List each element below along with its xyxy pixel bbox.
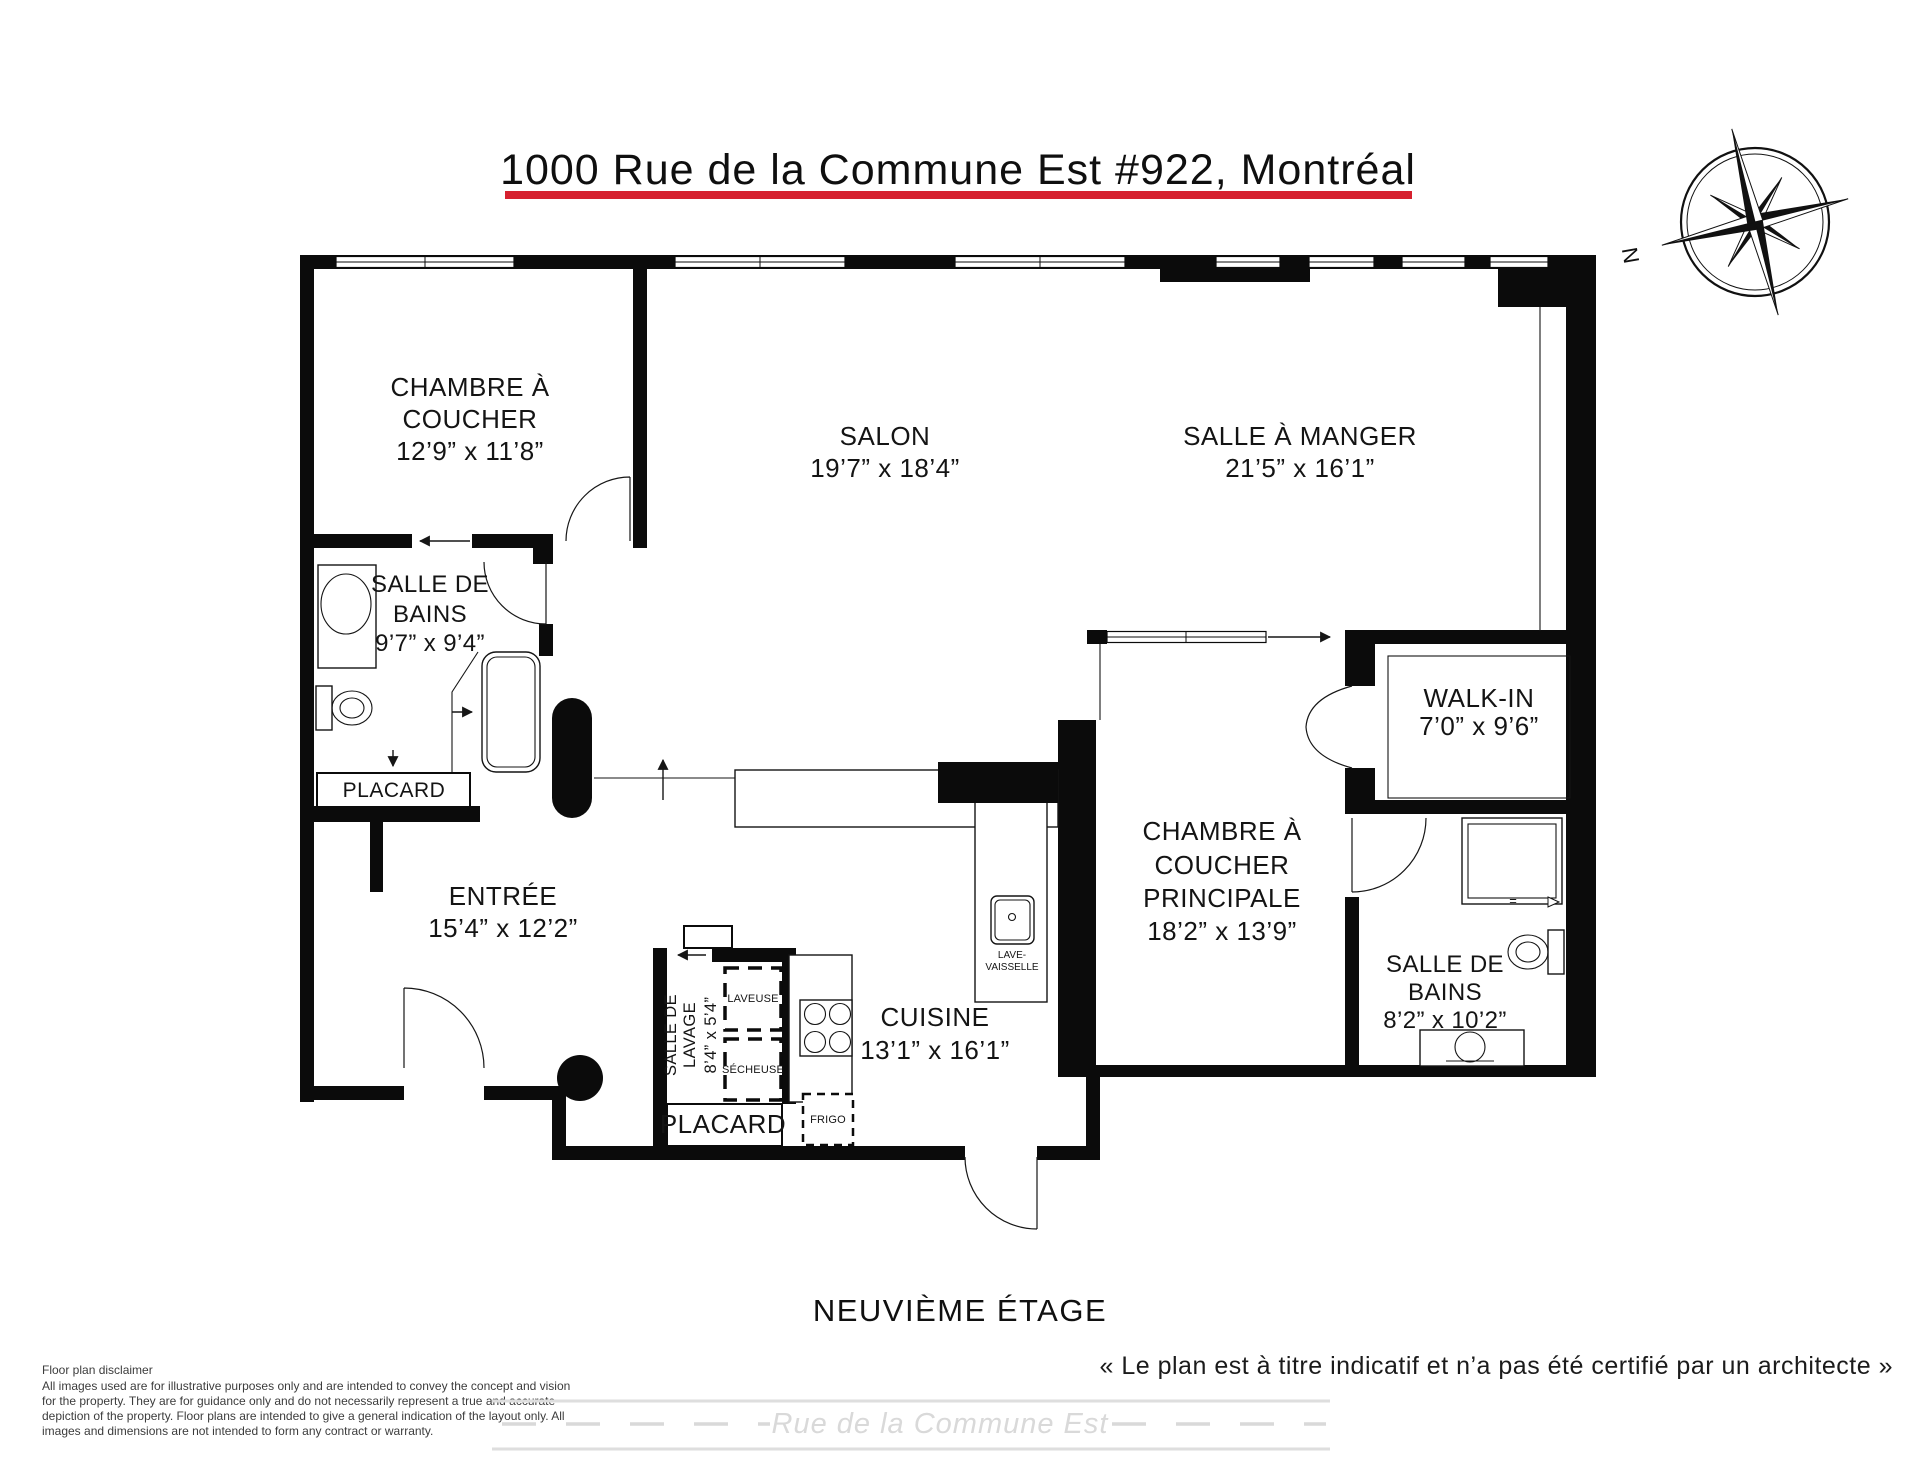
master-dims: 18’2” x 13’9” (1147, 916, 1297, 946)
washer-label: LAVEUSE (727, 993, 778, 1005)
bath2-label-2: BAINS (1408, 979, 1482, 1006)
laundry-label-1: SALLE DE (662, 994, 680, 1076)
closet2-label: PLACARD (660, 1109, 786, 1139)
salon-dims: 19’7” x 18’4” (810, 453, 960, 483)
stove-icon (800, 1000, 852, 1056)
interior-lines (594, 307, 1540, 778)
laundry-room: SALLE DE LAVAGE 8’4” x 5’4” LAVEUSE SÉCH… (662, 968, 784, 1100)
bedroom1-dims: 12’9” x 11’8” (396, 436, 544, 466)
entry-dims: 15’4” x 12’2” (428, 913, 578, 943)
header: 1000 Rue de la Commune Est #922, Montréa… (500, 146, 1416, 199)
bath1-label-2: BAINS (393, 601, 467, 628)
kitchen-label: CUISINE (881, 1002, 990, 1032)
title-underline (505, 191, 1412, 199)
wall-segment-kitchen (938, 762, 1058, 803)
architect-quote: « Le plan est à titre indicatif et n’a p… (1100, 1352, 1894, 1380)
dining-dims: 21’5” x 16’1” (1225, 453, 1375, 483)
toilet2-tank-icon (1548, 930, 1564, 974)
shower-icon (1462, 818, 1562, 904)
dining-label: SALLE À MANGER (1183, 421, 1417, 451)
page-title: 1000 Rue de la Commune Est #922, Montréa… (500, 146, 1416, 194)
disclaimer-line-3: depiction of the property. Floor plans a… (42, 1409, 565, 1423)
wall-stub-box (684, 926, 732, 948)
column-round (557, 1055, 603, 1101)
salon-label: SALON (840, 421, 931, 451)
master-label-3: PRINCIPALE (1143, 883, 1301, 913)
toilet2-icon (1508, 935, 1548, 969)
footer: NEUVIÈME ÉTAGE Floor plan disclaimer All… (42, 1293, 1893, 1449)
disclaimer-title: Floor plan disclaimer (42, 1363, 153, 1377)
kitchen-dims: 13’1” x 16’1” (860, 1035, 1010, 1065)
room-labels: CHAMBRE À COUCHER 12’9” x 11’8” SALON 19… (371, 372, 1507, 1065)
vanity-icon (318, 565, 376, 668)
disclaimer-line-1: All images used are for illustrative pur… (42, 1379, 570, 1393)
shower-mark: = (1509, 893, 1517, 908)
street-name: Rue de la Commune Est (772, 1408, 1110, 1440)
laundry-dims: 8’4” x 5’4” (702, 997, 720, 1074)
floor-plan-page: 1000 Rue de la Commune Est #922, Montréa… (0, 0, 1920, 1483)
dishwasher-label-2: VAISSELLE (985, 962, 1039, 973)
street-band: Rue de la Commune Est (492, 1401, 1330, 1449)
disclaimer-line-2: for the property. They are for guidance … (42, 1394, 556, 1408)
bedroom1-label-1: CHAMBRE À (390, 372, 549, 402)
compass-north-label: N (1617, 245, 1644, 265)
toilet-icon (332, 691, 372, 725)
master-label-2: COUCHER (1155, 850, 1290, 880)
walkin-dims: 7’0” x 9’6” (1419, 711, 1539, 741)
floor-label: NEUVIÈME ÉTAGE (813, 1293, 1107, 1328)
master-label-1: CHAMBRE À (1142, 816, 1301, 846)
laundry-label-2: LAVAGE (681, 1002, 699, 1068)
entry-label: ENTRÉE (449, 881, 557, 911)
walkin-label: WALK-IN (1424, 683, 1535, 713)
toilet-tank-icon (316, 686, 332, 730)
floor-plan-canvas: 1000 Rue de la Commune Est #922, Montréa… (0, 0, 1920, 1483)
fridge-label: FRIGO (810, 1114, 846, 1126)
bath1-label-1: SALLE DE (371, 571, 489, 598)
compass-points (1639, 106, 1872, 339)
dryer-label: SÉCHEUSE (722, 1063, 784, 1076)
toilet-bowl-inner (340, 698, 364, 718)
column-pill (552, 698, 592, 818)
closet1-label: PLACARD (343, 779, 446, 802)
bath2-label-1: SALLE DE (1386, 951, 1504, 978)
bedroom1-label-2: COUCHER (403, 404, 538, 434)
dishwasher-label-1: LAVE- (998, 950, 1026, 961)
disclaimer-line-4: images and dimensions are not intended t… (42, 1424, 433, 1438)
bath1-dims: 9’7” x 9’4” (375, 630, 485, 657)
compass-rose-icon: N (1617, 106, 1871, 339)
bath2-dims: 8’2” x 10’2” (1383, 1007, 1507, 1034)
bathtub-icon (482, 652, 540, 772)
